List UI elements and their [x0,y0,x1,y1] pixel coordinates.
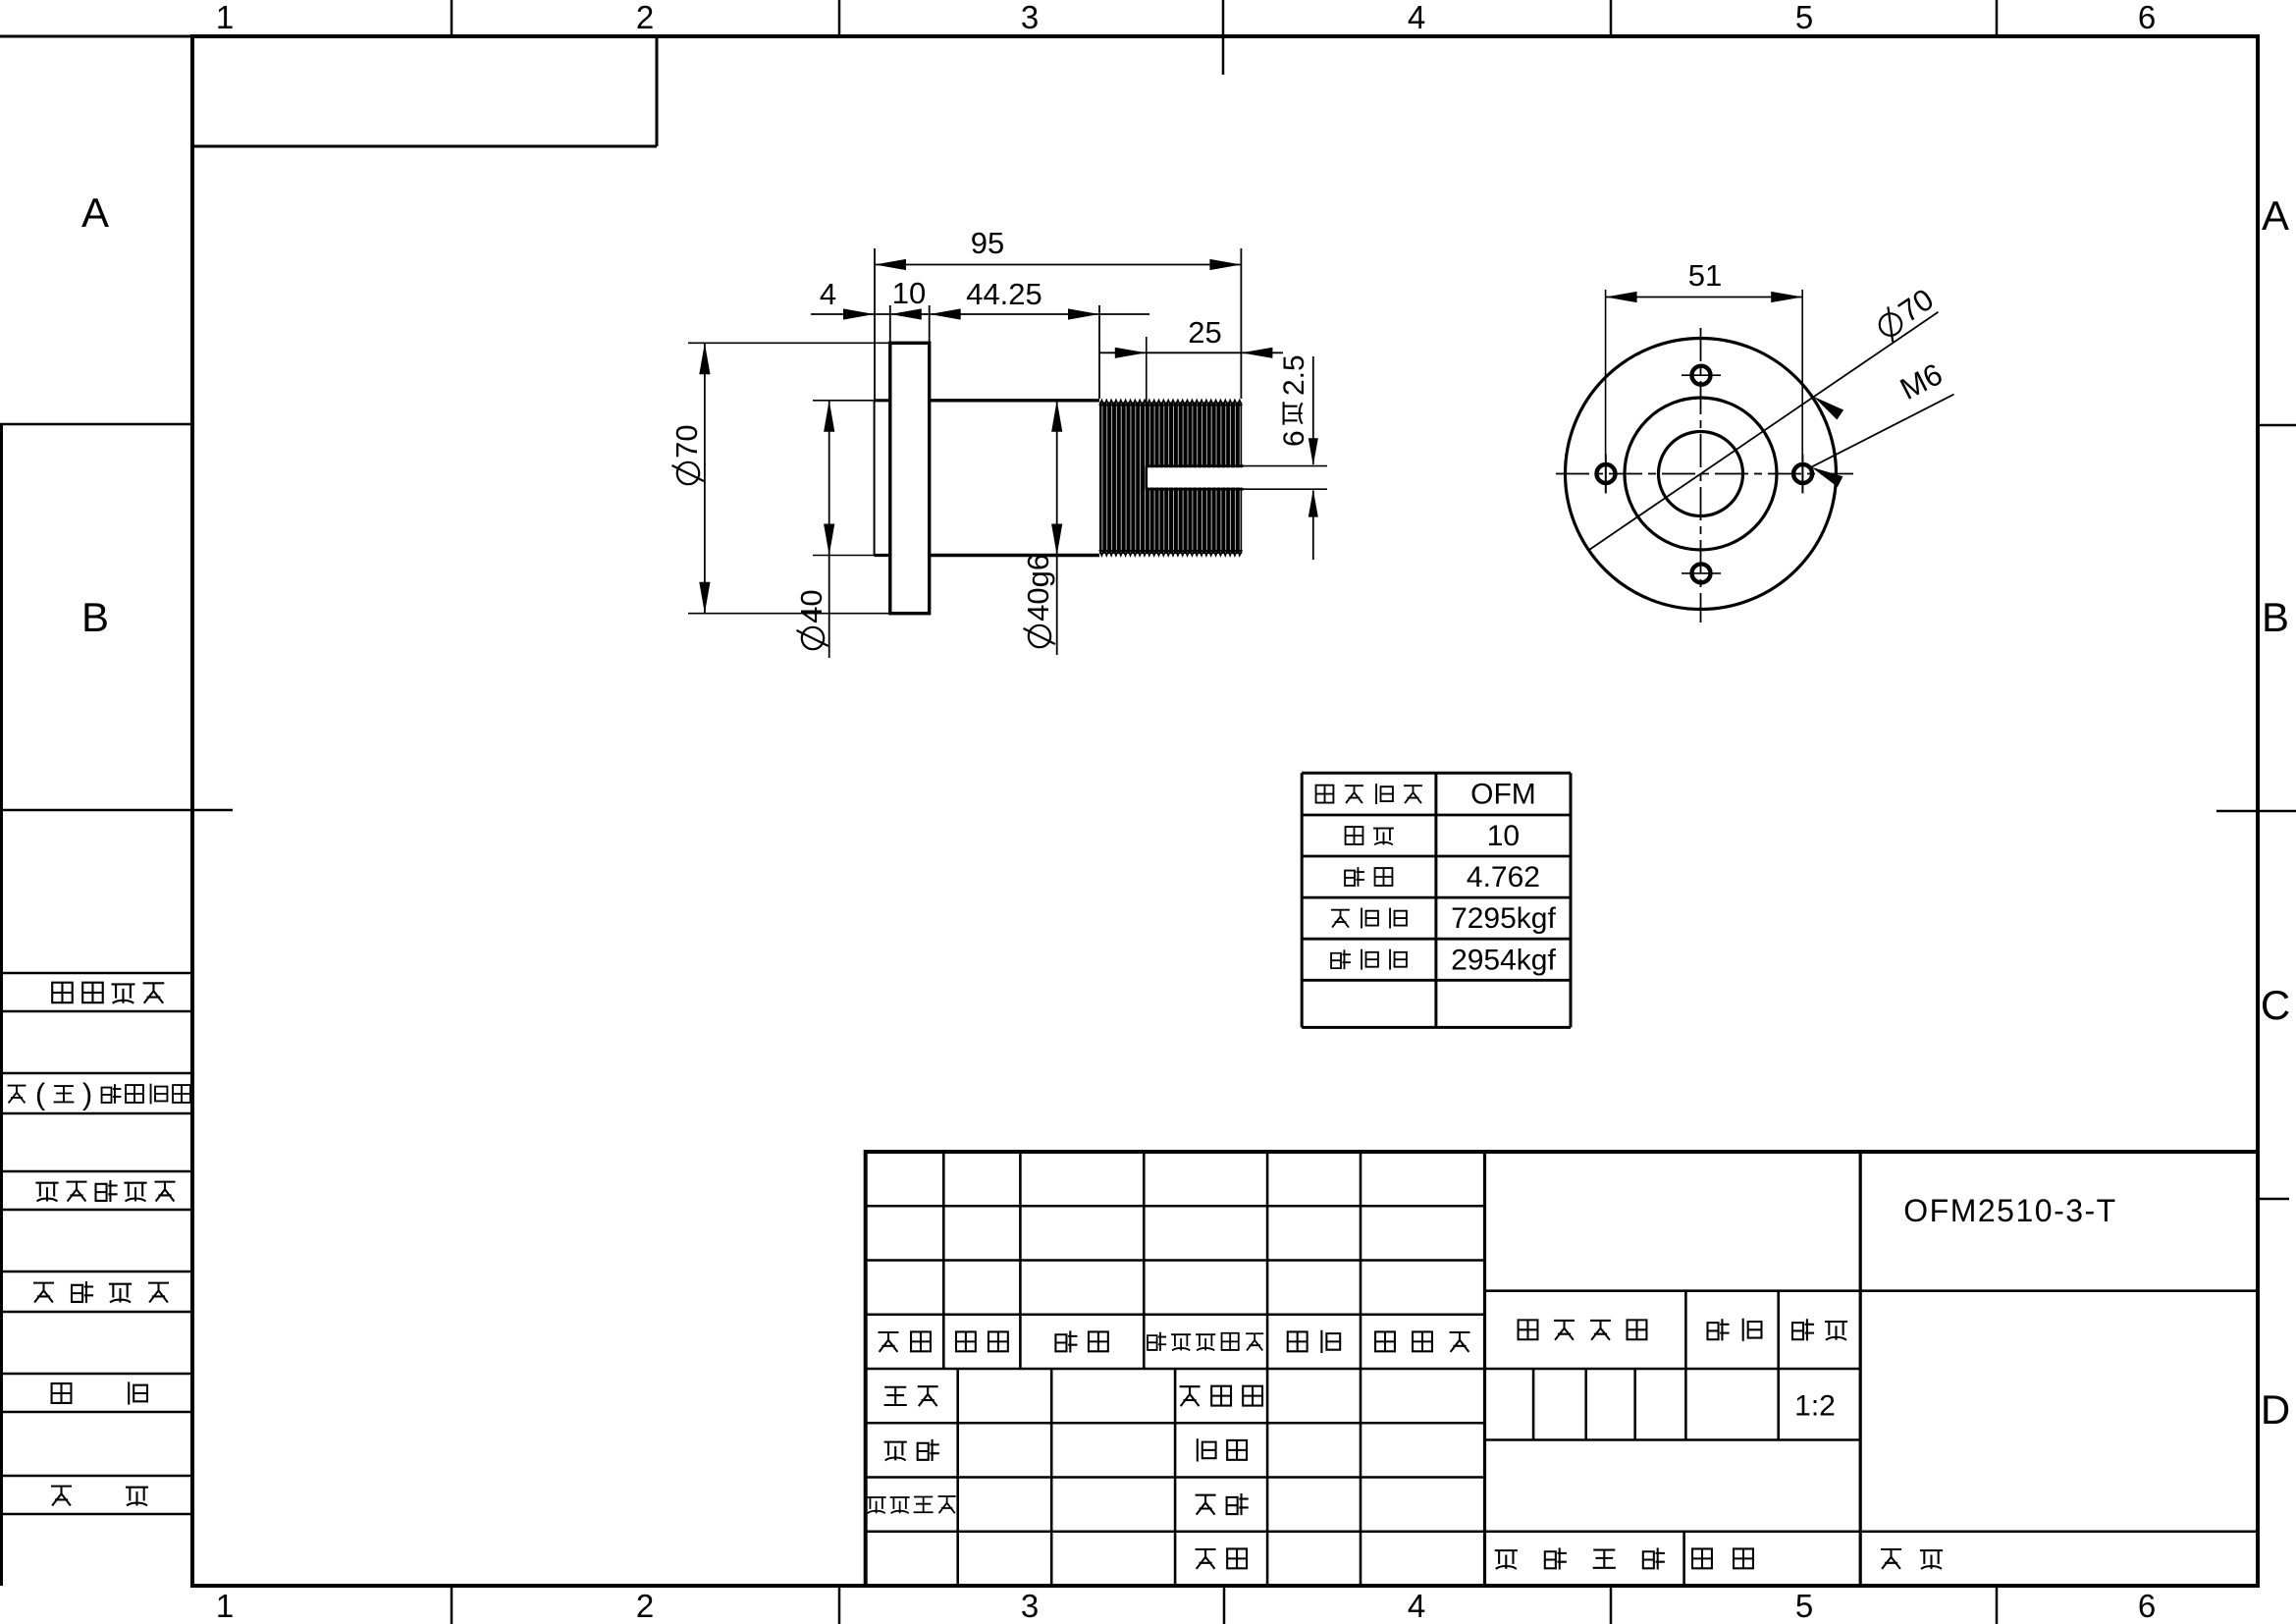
svg-text:40: 40 [794,589,828,623]
svg-text:4: 4 [820,277,836,311]
svg-text:2: 2 [636,0,654,35]
svg-text:2954kgf: 2954kgf [1451,944,1556,976]
svg-text:A: A [81,189,109,236]
svg-text:D: D [2261,1386,2290,1433]
svg-text:40g6: 40g6 [1021,554,1055,622]
svg-text:B: B [81,594,109,640]
svg-text:3: 3 [1021,0,1039,35]
svg-text:25: 25 [1188,315,1221,350]
svg-text:95: 95 [971,226,1004,260]
svg-text:4: 4 [1408,1588,1425,1624]
svg-text:(: ( [35,1076,46,1110]
svg-text:3: 3 [1021,1588,1039,1624]
svg-text:6: 6 [2138,0,2156,35]
svg-text:1: 1 [216,0,234,35]
svg-text:10: 10 [1487,820,1520,852]
svg-text:6: 6 [2138,1588,2156,1624]
svg-text:OFM2510-3-T: OFM2510-3-T [1903,1193,2116,1228]
svg-text:4.762: 4.762 [1467,861,1540,893]
svg-text:C: C [2261,982,2290,1028]
svg-text:B: B [2262,594,2289,640]
svg-text:): ) [82,1076,92,1110]
svg-text:70: 70 [669,424,704,458]
svg-text:1: 1 [216,1588,234,1624]
svg-text:A: A [2262,192,2289,239]
svg-text:5: 5 [1795,1588,1813,1624]
svg-text:10: 10 [892,276,926,310]
svg-text:4: 4 [1408,0,1425,35]
svg-text:44.25: 44.25 [966,277,1042,311]
svg-text:5: 5 [1795,0,1813,35]
svg-text:2: 2 [636,1588,654,1624]
svg-text:6: 6 [1278,430,1310,447]
svg-text:2.5: 2.5 [1278,354,1310,396]
svg-text:1:2: 1:2 [1794,1389,1836,1422]
svg-text:7295kgf: 7295kgf [1451,902,1556,935]
svg-text:OFM: OFM [1470,779,1536,811]
svg-text:51: 51 [1688,258,1722,293]
